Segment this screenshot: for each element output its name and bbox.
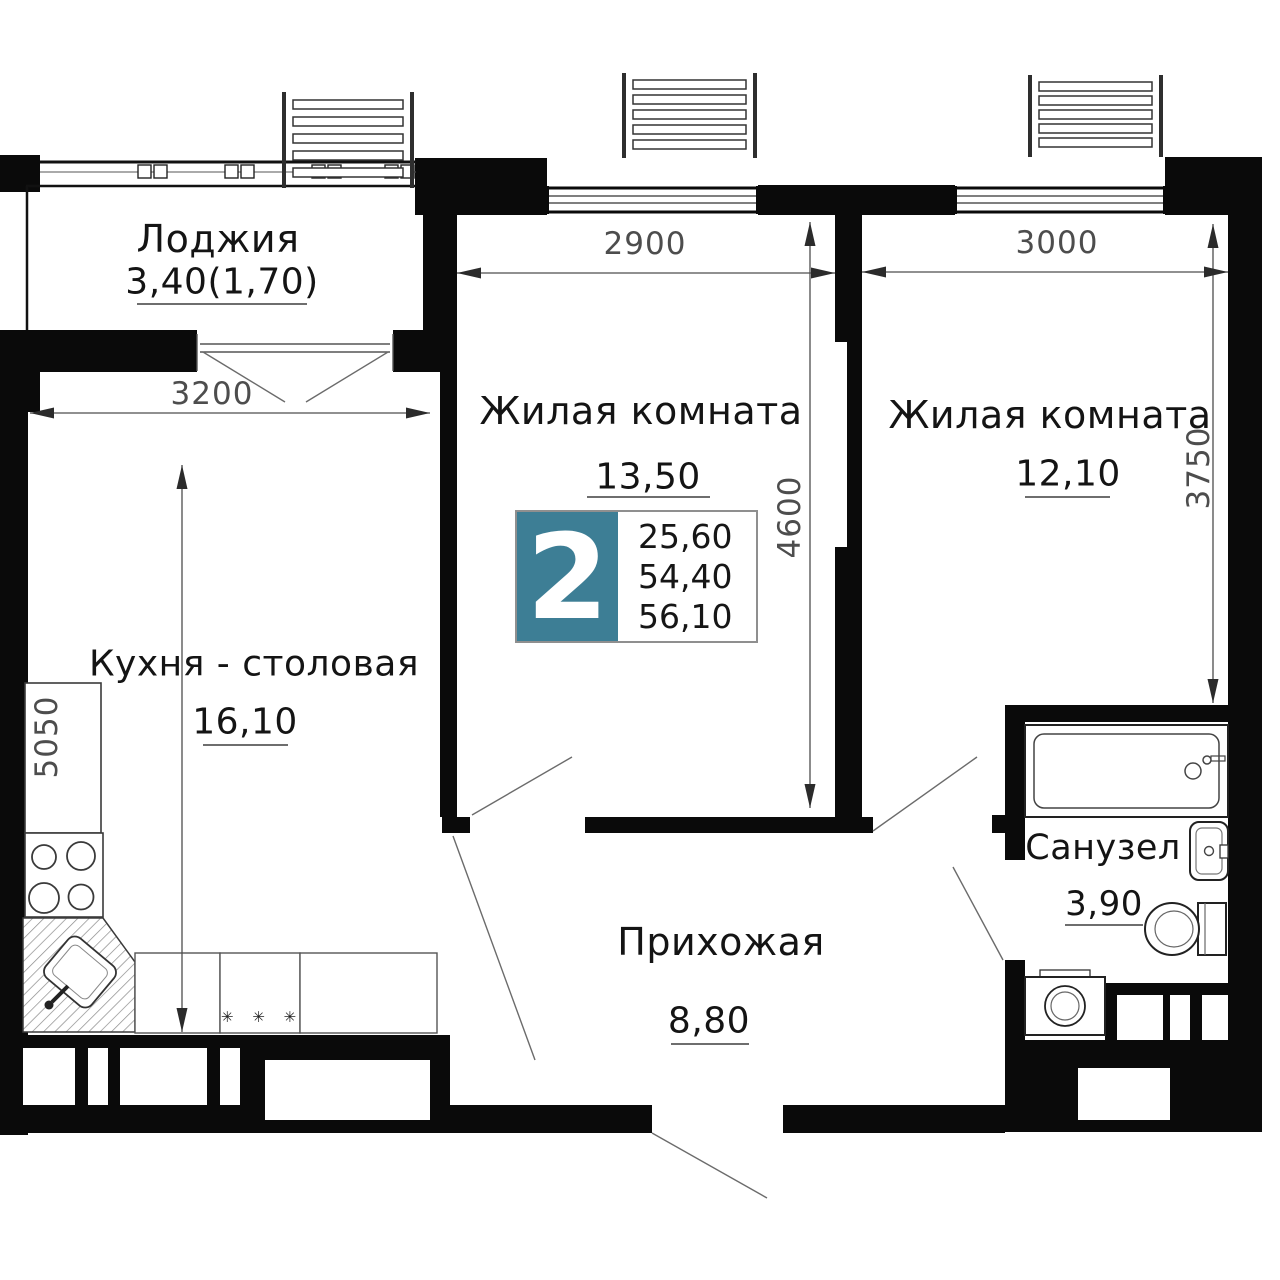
door-swing	[306, 352, 388, 402]
badge-area-list: 25,60 54,40 56,10	[618, 512, 756, 641]
wall-right	[1228, 157, 1262, 1123]
dim-living1-depth: 4600	[772, 476, 808, 559]
badge-area-line: 54,40	[638, 557, 756, 597]
window-living2	[955, 186, 1165, 214]
apartment-badge: 2 25,60 54,40 56,10	[515, 510, 758, 643]
wall-niche	[88, 1048, 108, 1105]
wall-bottom	[783, 1105, 1005, 1133]
area-underline	[137, 303, 307, 305]
wall-bath-top	[1005, 705, 1262, 722]
dim-living2-width: 3000	[1016, 225, 1099, 261]
badge-area-line: 56,10	[638, 597, 756, 637]
room-label-living2: Жилая комната	[888, 393, 1211, 437]
room-area-living1: 13,50	[595, 457, 701, 498]
dim-living1-width: 2900	[604, 226, 687, 262]
dim-kitchen-depth: 5050	[29, 696, 65, 779]
wall	[423, 215, 457, 330]
room-area-kitchen: 16,10	[192, 702, 298, 743]
washing-machine-icon	[1025, 970, 1105, 1035]
room-label-hallway: Прихожая	[617, 920, 825, 964]
vent-grille-icon	[622, 73, 757, 158]
wall-bath-left	[1005, 705, 1025, 860]
door-swing	[873, 757, 977, 831]
dim-kitchen-width: 3200	[171, 376, 254, 412]
bathtub-icon	[1025, 725, 1228, 817]
window-living1	[547, 186, 758, 214]
wall	[415, 158, 547, 215]
room-area-hallway: 8,80	[668, 1001, 750, 1042]
area-underline	[1025, 496, 1110, 498]
area-underline	[203, 744, 288, 746]
door-swing	[953, 867, 1003, 960]
vent-grille-icon	[1028, 75, 1163, 157]
room-area-living2: 12,10	[1015, 454, 1121, 495]
bathroom-sink-icon	[1190, 822, 1228, 880]
floorplan-canvas: Лоджия 3,40(1,70) Жилая комната 13,50 Жи…	[0, 0, 1280, 1280]
wall-niche	[1078, 1068, 1170, 1120]
wall-niche	[1202, 995, 1228, 1040]
wall-niche	[220, 1048, 240, 1105]
wall	[585, 817, 873, 833]
toilet-icon	[1145, 903, 1226, 955]
vent-grille-icon	[282, 92, 414, 188]
badge-area-line: 25,60	[638, 517, 756, 557]
wall-niche	[120, 1048, 207, 1105]
door-swing	[453, 836, 535, 1060]
room-label-loggia: Лоджия	[137, 217, 300, 261]
area-underline	[1065, 924, 1143, 926]
wall	[758, 185, 955, 215]
wall-niche	[1117, 995, 1163, 1040]
wall-notch	[835, 342, 847, 547]
area-underline	[671, 1043, 749, 1045]
room-label-bathroom: Санузел	[1025, 828, 1181, 868]
door-swing	[472, 757, 572, 815]
wall-niche	[23, 1048, 75, 1105]
wall	[40, 330, 197, 372]
stove-icon	[25, 833, 103, 917]
wall	[442, 817, 470, 833]
wall	[0, 330, 40, 412]
hob-marks: ✳ ✳ ✳	[221, 1008, 303, 1026]
entrance-door-swing	[652, 1133, 767, 1198]
wall-niche	[265, 1060, 430, 1120]
room-label-kitchen: Кухня - столовая	[89, 644, 419, 685]
room-area-loggia: 3,40(1,70)	[125, 262, 318, 303]
kitchen-sink-icon	[23, 918, 135, 1032]
dim-living2-depth: 3750	[1181, 427, 1217, 510]
area-underline	[587, 496, 710, 498]
wall-niche	[1170, 995, 1190, 1040]
wall-kitchen-divider	[440, 372, 457, 817]
wall	[393, 330, 457, 372]
wall-bottom	[450, 1105, 652, 1133]
room-area-bathroom: 3,90	[1065, 884, 1143, 924]
room-count-badge: 2	[517, 512, 618, 641]
room-label-living1: Жилая комната	[479, 389, 802, 433]
